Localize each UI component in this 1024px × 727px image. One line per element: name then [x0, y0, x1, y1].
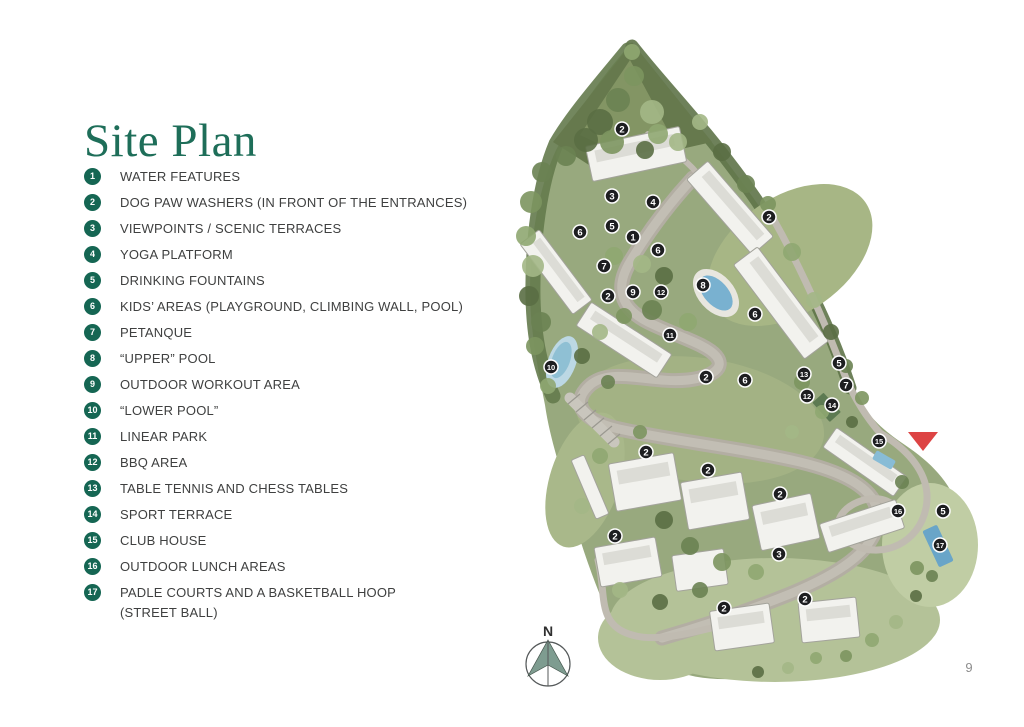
map-marker-14: 14 [825, 398, 839, 412]
map-marker-12: 12 [654, 285, 668, 299]
entrance-marker [908, 432, 938, 451]
svg-text:11: 11 [666, 331, 674, 340]
map-marker-6: 6 [738, 373, 752, 387]
svg-text:3: 3 [609, 191, 614, 202]
map-marker-2: 2 [773, 487, 787, 501]
svg-text:14: 14 [828, 401, 837, 410]
svg-text:5: 5 [836, 358, 842, 369]
svg-text:1: 1 [630, 232, 636, 243]
map-marker-3: 3 [605, 189, 619, 203]
svg-text:4: 4 [650, 197, 656, 208]
map-marker-16: 16 [891, 504, 905, 518]
svg-text:2: 2 [766, 212, 771, 223]
svg-text:12: 12 [803, 392, 811, 401]
svg-text:13: 13 [800, 370, 808, 379]
map-marker-3: 3 [772, 547, 786, 561]
svg-text:8: 8 [700, 280, 705, 291]
site-map: 2342561678912261151013267121415222165217… [0, 0, 1024, 727]
svg-text:6: 6 [742, 375, 747, 386]
map-marker-6: 6 [748, 307, 762, 321]
map-marker-5: 5 [936, 504, 950, 518]
map-marker-5: 5 [832, 356, 846, 370]
svg-text:9: 9 [630, 287, 635, 298]
svg-text:5: 5 [609, 221, 615, 232]
map-marker-2: 2 [762, 210, 776, 224]
map-marker-7: 7 [597, 259, 611, 273]
svg-text:15: 15 [875, 437, 883, 446]
svg-text:7: 7 [601, 261, 606, 272]
page-number: 9 [956, 660, 982, 675]
svg-text:5: 5 [940, 506, 946, 517]
svg-text:2: 2 [721, 603, 726, 614]
svg-text:6: 6 [752, 309, 757, 320]
map-marker-17: 17 [933, 538, 947, 552]
map-marker-2: 2 [608, 529, 622, 543]
map-marker-2: 2 [601, 289, 615, 303]
map-marker-4: 4 [646, 195, 660, 209]
map-marker-9: 9 [626, 285, 640, 299]
svg-text:2: 2 [619, 124, 624, 135]
svg-text:7: 7 [843, 380, 848, 391]
map-marker-15: 15 [872, 434, 886, 448]
svg-text:3: 3 [776, 549, 781, 560]
map-marker-13: 13 [797, 367, 811, 381]
map-marker-6: 6 [651, 243, 665, 257]
map-marker-2: 2 [699, 370, 713, 384]
svg-text:10: 10 [547, 363, 555, 372]
svg-text:2: 2 [703, 372, 708, 383]
svg-text:6: 6 [655, 245, 660, 256]
map-marker-2: 2 [701, 463, 715, 477]
compass-north-label: N [543, 623, 553, 639]
svg-text:2: 2 [612, 531, 617, 542]
compass-icon: N [526, 623, 570, 686]
map-marker-2: 2 [639, 445, 653, 459]
map-marker-12: 12 [800, 389, 814, 403]
svg-text:2: 2 [605, 291, 610, 302]
svg-text:2: 2 [802, 594, 807, 605]
svg-text:2: 2 [643, 447, 648, 458]
map-marker-10: 10 [544, 360, 558, 374]
map-marker-7: 7 [839, 378, 853, 392]
map-marker-2: 2 [717, 601, 731, 615]
svg-text:6: 6 [577, 227, 582, 238]
map-marker-2: 2 [798, 592, 812, 606]
map-marker-1: 1 [626, 230, 640, 244]
map-marker-5: 5 [605, 219, 619, 233]
map-marker-2: 2 [615, 122, 629, 136]
map-marker-6: 6 [573, 225, 587, 239]
svg-text:17: 17 [936, 541, 944, 550]
map-marker-11: 11 [663, 328, 677, 342]
map-marker-8: 8 [696, 278, 710, 292]
svg-text:16: 16 [894, 507, 902, 516]
svg-text:2: 2 [705, 465, 710, 476]
svg-text:2: 2 [777, 489, 782, 500]
svg-text:12: 12 [657, 288, 665, 297]
